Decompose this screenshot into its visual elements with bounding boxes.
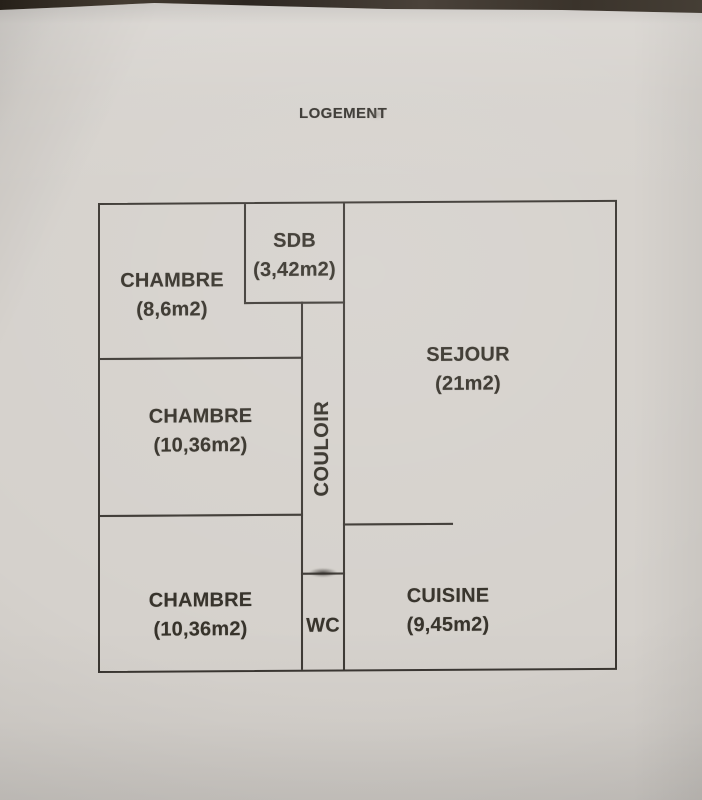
room-cuisine-name: CUISINE xyxy=(343,581,553,611)
wall-cuisine-partial-top xyxy=(343,523,453,526)
room-sejour-area: (21m2) xyxy=(343,369,593,400)
room-chambre-1: CHAMBRE (8,6m2) xyxy=(100,266,244,325)
wall-sdb-bottom xyxy=(244,301,345,304)
room-chambre-2-name: CHAMBRE xyxy=(100,402,301,432)
room-wc-name: WC xyxy=(306,615,340,637)
wall-chambre2-chambre3-divider xyxy=(100,514,303,517)
title-smudge-mark xyxy=(368,108,385,120)
room-cuisine: CUISINE (9,45m2) xyxy=(343,581,553,640)
paper-top-edge-shadow xyxy=(0,0,702,26)
room-sdb-name: SDB xyxy=(244,226,345,256)
room-wc: WC xyxy=(301,611,345,640)
room-couloir: COULOIR xyxy=(301,369,343,529)
room-couloir-name: COULOIR xyxy=(311,401,333,497)
room-sejour-name: SEJOUR xyxy=(343,340,593,371)
room-chambre-2: CHAMBRE (10,36m2) xyxy=(100,402,301,461)
room-sdb-area: (3,42m2) xyxy=(244,255,345,285)
room-chambre-1-name: CHAMBRE xyxy=(100,266,244,296)
paper-sheet: LOGEMENT CHAMBRE (8,6m2) SDB (3,42m2) xyxy=(0,0,702,800)
room-sejour: SEJOUR (21m2) xyxy=(343,340,593,400)
room-chambre-3: CHAMBRE (10,36m2) xyxy=(100,586,301,645)
room-cuisine-area: (9,45m2) xyxy=(343,610,553,640)
floor-plan: CHAMBRE (8,6m2) SDB (3,42m2) SEJOUR (21m… xyxy=(98,200,617,673)
room-chambre-2-area: (10,36m2) xyxy=(100,431,301,461)
wc-wall-smudge-mark xyxy=(306,567,340,578)
room-sdb: SDB (3,42m2) xyxy=(244,226,345,285)
room-chambre-3-name: CHAMBRE xyxy=(100,586,301,616)
room-chambre-1-area: (8,6m2) xyxy=(100,295,244,325)
photo-background: LOGEMENT CHAMBRE (8,6m2) SDB (3,42m2) xyxy=(0,0,702,800)
wall-chambre1-chambre2-divider xyxy=(100,357,303,360)
room-chambre-3-area: (10,36m2) xyxy=(100,615,301,645)
